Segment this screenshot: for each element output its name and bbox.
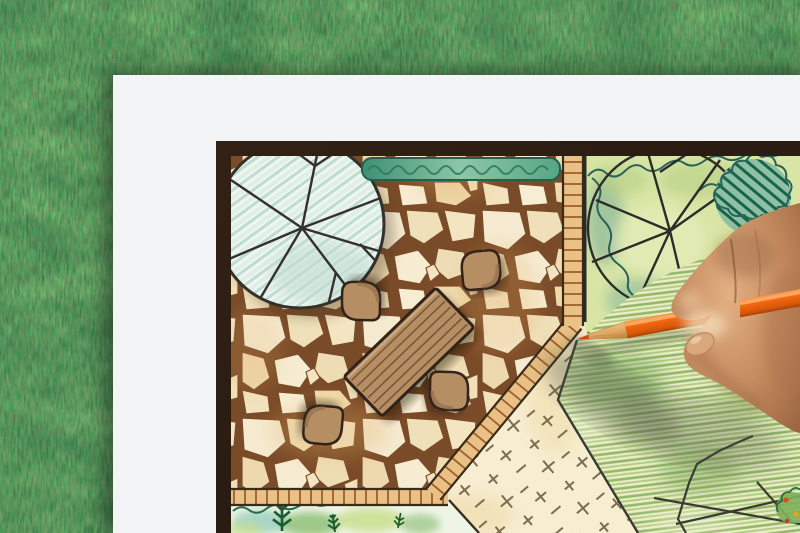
chair-bottom-right bbox=[425, 372, 469, 416]
knuckle-shading bbox=[715, 233, 775, 277]
chair-bottom-left bbox=[297, 399, 344, 446]
brick-edge-vertical bbox=[562, 156, 584, 326]
fingertip-highlight bbox=[678, 292, 702, 308]
hedge-row bbox=[362, 158, 560, 180]
photo-garden-plan-scene bbox=[0, 0, 800, 533]
brick-edge-horizontal bbox=[230, 489, 448, 505]
chair-top-left bbox=[342, 277, 386, 321]
